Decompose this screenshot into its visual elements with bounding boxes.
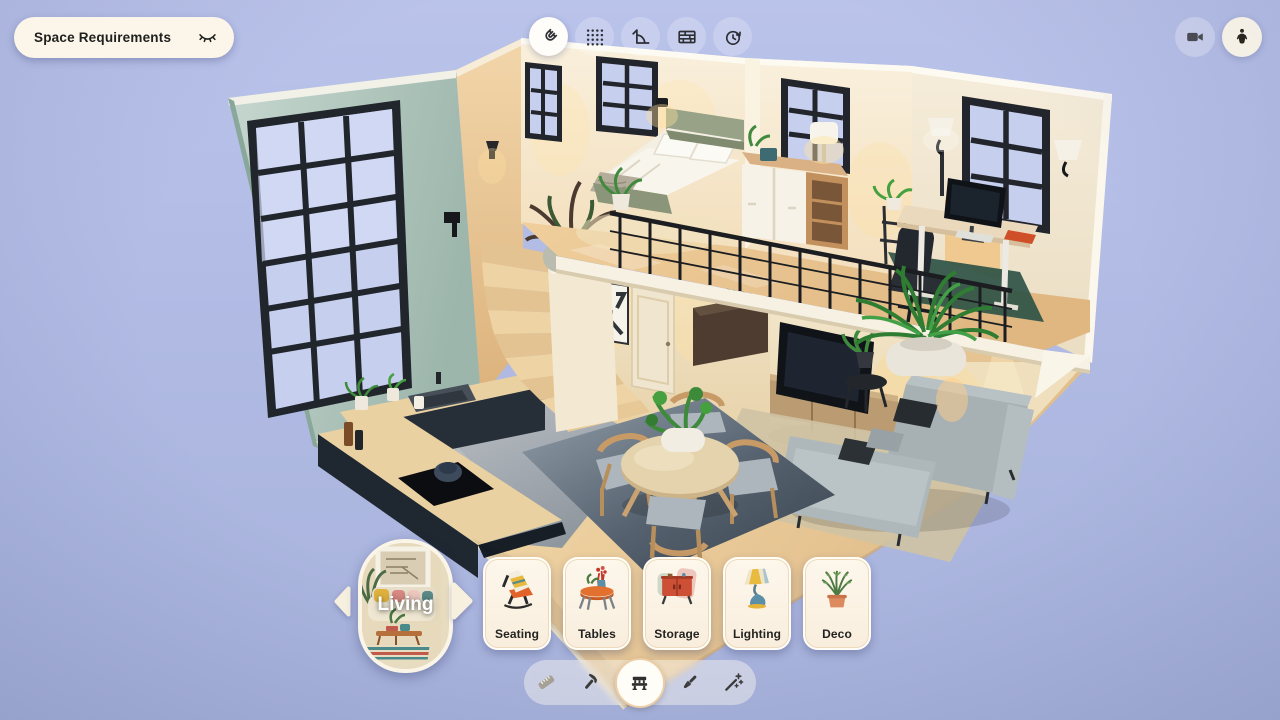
magnet-icon — [538, 26, 560, 48]
top-toolbar — [529, 17, 752, 56]
table-lamp-illustration — [734, 564, 780, 612]
chevron-right-arrow — [454, 585, 470, 617]
carousel-prev-button[interactable] — [334, 586, 351, 617]
video-camera-icon — [1184, 26, 1206, 48]
bench-icon — [628, 671, 651, 694]
potted-plant-illustration — [814, 564, 860, 612]
category-label: Seating — [495, 627, 539, 641]
furnish-tool-button[interactable] — [615, 658, 665, 708]
space-requirements-button[interactable]: Space Requirements — [14, 17, 234, 58]
category-card-tables[interactable]: Tables — [563, 557, 631, 650]
dresser-lamp — [804, 122, 844, 164]
room-selector-label: Living — [362, 594, 449, 616]
magic-wand-icon — [722, 671, 745, 694]
space-requirements-label: Space Requirements — [34, 30, 171, 45]
category-label: Storage — [654, 627, 699, 641]
angle-ruler-icon — [630, 26, 652, 48]
snap-tool-button[interactable] — [529, 17, 568, 56]
camera-view-button[interactable] — [1175, 17, 1215, 57]
category-card-seating[interactable]: Seating — [483, 557, 551, 650]
history-button[interactable] — [713, 17, 752, 56]
category-label: Lighting — [733, 627, 781, 641]
paint-tool-button[interactable] — [669, 663, 709, 703]
layout-grid-button[interactable] — [575, 17, 614, 56]
view-controls — [1175, 17, 1262, 57]
cabinet-illustration — [654, 564, 700, 612]
carousel-next-button[interactable] — [451, 582, 473, 620]
closed-eye-icon — [197, 27, 218, 48]
brick-wall-icon — [676, 26, 698, 48]
bottom-toolbar — [524, 660, 756, 705]
tape-measure-icon — [535, 671, 558, 694]
scene-3d-viewport[interactable] — [0, 0, 1280, 720]
room-selector-living[interactable]: Living — [358, 539, 453, 673]
chevron-left-arrow — [337, 589, 349, 615]
materials-button[interactable] — [667, 17, 706, 56]
measure-tool-button[interactable] — [526, 663, 566, 703]
auto-style-tool-button[interactable] — [714, 663, 754, 703]
door[interactable] — [632, 286, 674, 394]
category-card-lighting[interactable]: Lighting — [723, 557, 791, 650]
round-table-illustration — [574, 564, 620, 612]
build-tool-button[interactable] — [571, 663, 611, 703]
category-label: Tables — [578, 627, 616, 641]
industrial-window-grid — [247, 100, 412, 418]
hammer-icon — [579, 671, 602, 694]
category-label: Deco — [822, 627, 852, 641]
category-card-deco[interactable]: Deco — [803, 557, 871, 650]
measure-angle-button[interactable] — [621, 17, 660, 56]
clock-rotate-icon — [722, 26, 744, 48]
walk-mode-button[interactable] — [1222, 17, 1262, 57]
category-card-storage[interactable]: Storage — [643, 557, 711, 650]
dots-grid-icon — [584, 26, 606, 48]
lounge-chair-illustration — [494, 564, 540, 612]
person-icon — [1231, 26, 1253, 48]
paint-brush-icon — [678, 671, 701, 694]
